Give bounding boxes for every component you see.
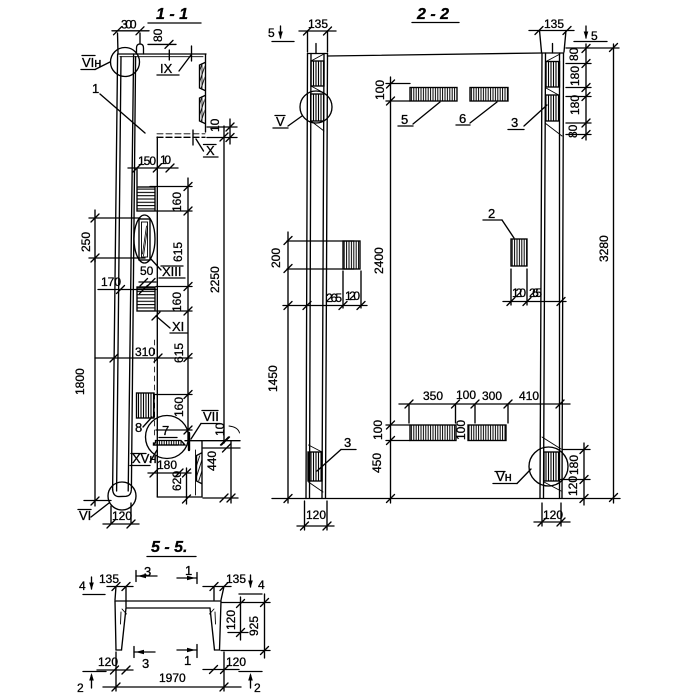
svg-text:4: 4 <box>79 579 86 593</box>
svg-text:2: 2 <box>254 681 261 695</box>
svg-text:120: 120 <box>306 508 326 522</box>
svg-text:IX: IX <box>160 61 173 76</box>
svg-text:160: 160 <box>170 292 184 312</box>
svg-text:440: 440 <box>205 451 219 471</box>
svg-text:450: 450 <box>370 453 384 473</box>
svg-text:3: 3 <box>142 656 149 671</box>
svg-text:180: 180 <box>568 95 582 115</box>
svg-text:50: 50 <box>140 264 154 278</box>
svg-text:250: 250 <box>79 232 93 252</box>
svg-text:100: 100 <box>454 420 468 440</box>
svg-text:10: 10 <box>208 118 222 132</box>
svg-text:1: 1 <box>185 563 192 578</box>
svg-text:10: 10 <box>160 153 171 167</box>
svg-text:350: 350 <box>423 389 443 403</box>
svg-text:180: 180 <box>157 458 177 472</box>
svg-text:80: 80 <box>566 124 580 138</box>
svg-text:V: V <box>276 114 285 129</box>
svg-text:615: 615 <box>171 242 185 262</box>
svg-text:5: 5 <box>401 112 408 127</box>
svg-text:XI: XI <box>172 319 184 334</box>
svg-text:VII: VII <box>203 409 219 424</box>
svg-text:135: 135 <box>544 17 564 31</box>
svg-text:3: 3 <box>511 115 518 130</box>
svg-text:VI: VI <box>79 508 91 523</box>
svg-text:6: 6 <box>459 111 466 126</box>
svg-text:2: 2 <box>77 681 84 695</box>
svg-text:1: 1 <box>184 653 191 668</box>
svg-text:310: 310 <box>135 345 155 359</box>
svg-text:2: 2 <box>488 206 495 221</box>
svg-text:135: 135 <box>99 572 119 586</box>
svg-text:180: 180 <box>568 66 582 86</box>
svg-text:1450: 1450 <box>266 365 280 392</box>
svg-text:120: 120 <box>226 655 246 669</box>
svg-text:120: 120 <box>224 610 238 630</box>
svg-text:2 - 2: 2 - 2 <box>416 6 449 23</box>
svg-text:2250: 2250 <box>208 266 222 293</box>
svg-text:3280: 3280 <box>597 235 611 262</box>
svg-text:180: 180 <box>567 455 581 475</box>
svg-text:135: 135 <box>226 572 246 586</box>
svg-text:120: 120 <box>98 655 118 669</box>
svg-text:8: 8 <box>135 420 142 435</box>
svg-text:1: 1 <box>92 81 99 96</box>
svg-text:135: 135 <box>308 17 328 31</box>
svg-text:100: 100 <box>373 80 387 100</box>
svg-text:X: X <box>206 143 215 158</box>
svg-text:5: 5 <box>268 26 275 40</box>
svg-text:300: 300 <box>121 18 137 32</box>
svg-text:160: 160 <box>172 397 186 417</box>
svg-text:200: 200 <box>269 248 283 268</box>
svg-text:1800: 1800 <box>73 368 87 395</box>
svg-text:10: 10 <box>213 422 227 436</box>
svg-text:5 - 5.: 5 - 5. <box>151 539 187 556</box>
svg-text:615: 615 <box>172 343 186 363</box>
svg-text:100: 100 <box>371 420 385 440</box>
svg-text:300: 300 <box>482 389 502 403</box>
svg-text:265: 265 <box>326 291 342 305</box>
svg-text:2400: 2400 <box>372 247 386 274</box>
svg-text:120: 120 <box>543 508 563 522</box>
svg-text:1970: 1970 <box>159 671 186 685</box>
svg-text:170: 170 <box>101 275 121 289</box>
svg-text:1 - 1: 1 - 1 <box>156 6 188 23</box>
svg-text:620: 620 <box>170 471 184 491</box>
svg-text:80: 80 <box>567 47 581 61</box>
svg-text:410: 410 <box>519 389 539 403</box>
svg-text:4: 4 <box>258 578 265 592</box>
svg-text:925: 925 <box>247 616 261 636</box>
svg-text:120: 120 <box>566 476 580 496</box>
svg-text:3: 3 <box>344 435 351 450</box>
svg-text:150: 150 <box>138 154 156 168</box>
svg-text:160: 160 <box>170 192 184 212</box>
svg-text:80: 80 <box>151 28 165 42</box>
